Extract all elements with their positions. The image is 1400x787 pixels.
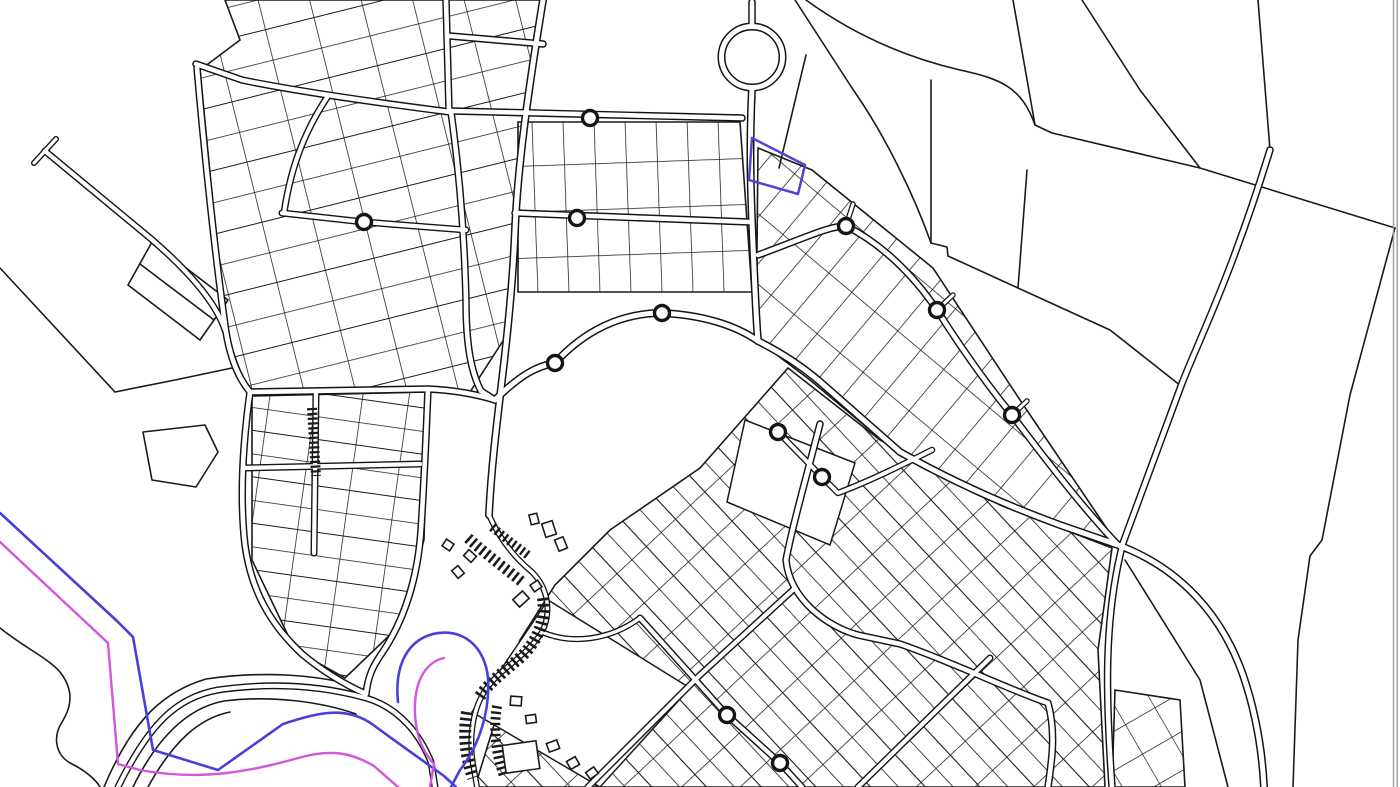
building: [464, 550, 477, 563]
building: [529, 513, 539, 525]
mini-roundabout: [774, 757, 786, 769]
mini-roundabout: [656, 307, 668, 319]
mini-roundabout: [931, 304, 943, 316]
zone-southwest-grid: [252, 392, 428, 678]
roundabout: [722, 27, 783, 88]
building: [555, 537, 568, 551]
road-crescent-casing: [495, 313, 758, 400]
zone-north-center-lots: [518, 122, 752, 292]
building: [452, 566, 465, 579]
mini-roundabout: [549, 357, 561, 369]
building: [513, 591, 529, 607]
mini-roundabout: [772, 426, 784, 438]
hatched-strip: [312, 408, 316, 476]
field-line-b: [1082, 0, 1200, 168]
fan-outer-edge: [1018, 288, 1181, 386]
zone-northwest-grid: [200, 0, 540, 392]
map-viewport: [0, 0, 1400, 787]
road-pier-casing: [45, 151, 225, 330]
mini-roundabout: [816, 471, 828, 483]
mini-roundabout: [571, 212, 583, 224]
mini-roundabout: [840, 220, 852, 232]
road-nw-north-stub: [446, 0, 449, 110]
map-frame-edge: [1394, 0, 1398, 787]
coastline: [0, 628, 100, 787]
building: [542, 521, 557, 538]
north-field-boundary: [806, 0, 1395, 228]
field-line-c: [1258, 0, 1270, 150]
building: [525, 714, 536, 723]
west-open-boundary: [0, 268, 115, 392]
mini-roundabout: [584, 112, 596, 124]
zone-bottom-right-lots: [1112, 690, 1185, 787]
east-field-boundary: [1293, 228, 1395, 787]
map-canvas[interactable]: [0, 0, 1400, 787]
fan-step-boundary: [931, 243, 1018, 288]
mini-roundabout: [721, 709, 733, 721]
building: [502, 741, 540, 773]
field-corner-line: [1018, 170, 1027, 288]
field-line-a: [1013, 0, 1035, 125]
building: [442, 539, 454, 551]
mini-roundabout: [358, 216, 370, 228]
pentagon-parcel: [143, 425, 218, 487]
west-open-boundary-2: [115, 368, 232, 392]
mini-roundabout: [1006, 409, 1018, 421]
building: [510, 696, 522, 706]
